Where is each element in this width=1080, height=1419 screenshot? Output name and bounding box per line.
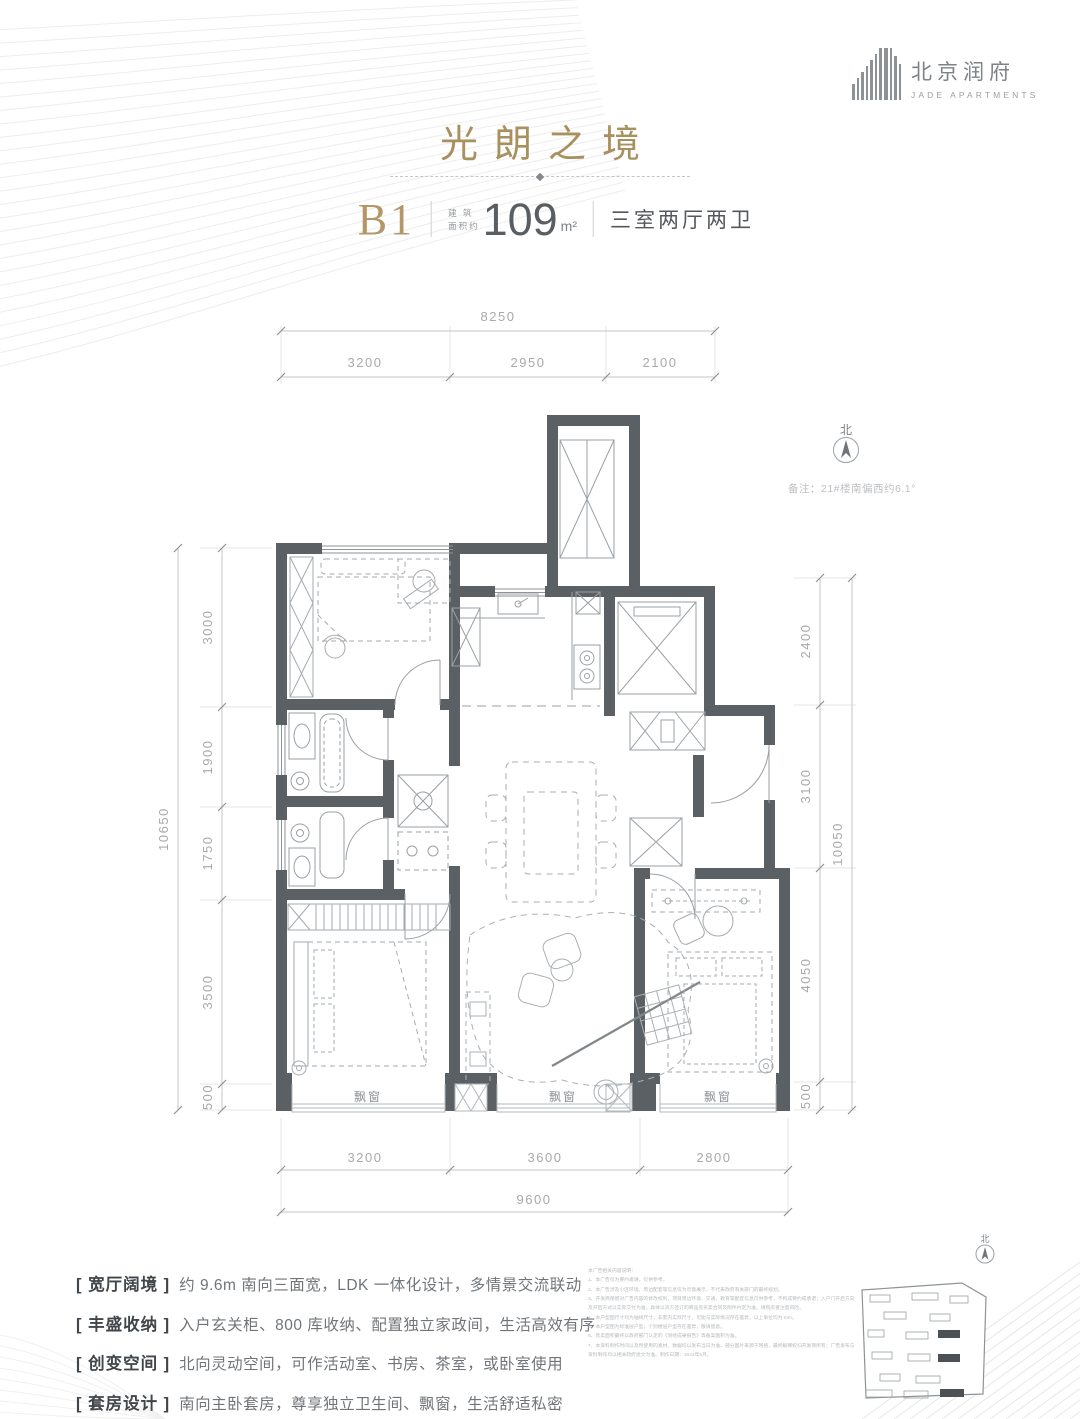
sink-icon xyxy=(294,724,310,748)
north-arrow-icon xyxy=(841,440,851,458)
dimensions: 8250 3200 2950 2100 3200 3600 2800 9600 … xyxy=(156,309,856,1216)
disclaimer-item: 5、本户型图为标准层户型，个别楼层户型存在差异，敬请留意。 xyxy=(588,1323,856,1332)
disclaimer-title: 本广告相关内容说明： xyxy=(588,1267,856,1276)
north-arrow-icon xyxy=(982,1247,989,1260)
dim-left-4: 3500 xyxy=(200,975,215,1010)
disclaimer-item: 2、本广告涉及小区环境、周边配套等信息仅为示意展示，不代表政府有关部门的最终规划… xyxy=(588,1286,856,1295)
feature-list: [ 宽厅阔境 ] 约 9.6m 南向三面宽，LDK 一体化设计，多情景交流联动 … xyxy=(76,1271,588,1419)
disclaimer-item: 6、售卖面积最终以政府部门认定的《测绘成果报告》等备案面积为准。 xyxy=(588,1332,856,1341)
dim-left-3: 1750 xyxy=(200,836,215,871)
shaft-duct-icon xyxy=(630,712,705,750)
north-arrow-site: 北 xyxy=(976,1234,994,1263)
walls xyxy=(276,415,790,1111)
desk xyxy=(398,559,450,603)
feature-text: 南向主卧套房，尊享独立卫生间、飘窗，生活舒适私密 xyxy=(179,1392,563,1414)
dim-left-2: 1900 xyxy=(200,740,215,775)
brand-logo: 北京润府 JADE APARTMENTS xyxy=(852,48,1052,100)
wardrobe xyxy=(288,904,450,930)
dim-right-4: 500 xyxy=(798,1083,813,1109)
site-plan: 北 xyxy=(862,1234,994,1398)
dim-top-3: 2100 xyxy=(643,355,678,370)
north-arrow-plan: 北 xyxy=(834,423,859,463)
dining-table xyxy=(506,762,596,902)
logo-text-en: JADE APARTMENTS xyxy=(911,90,1038,100)
bay-label-1: 飘窗 xyxy=(354,1090,382,1104)
dim-bottom-3: 2800 xyxy=(697,1150,732,1165)
chair xyxy=(596,795,616,821)
bay-label-2: 飘窗 xyxy=(549,1090,577,1104)
sink-icon xyxy=(294,856,310,878)
toilet-icon xyxy=(291,772,309,790)
bed xyxy=(308,942,426,1066)
pillow xyxy=(321,559,405,574)
shower-icon xyxy=(320,812,344,878)
bedroom-3 xyxy=(652,890,773,1073)
headboard xyxy=(294,942,308,1066)
dim-bottom-1: 3200 xyxy=(348,1150,383,1165)
storage-cabinet xyxy=(398,832,448,870)
armchair xyxy=(517,971,556,1008)
feature-label: [ 丰盛收纳 ] xyxy=(76,1311,170,1335)
disclaimer-item: 3、开发商保留对广告内容的修改权利，项目周边环境、交通、教育等配套信息仅供参考，… xyxy=(588,1295,856,1314)
dim-bottom-2: 3600 xyxy=(528,1150,563,1165)
dim-right-3: 4050 xyxy=(798,958,813,993)
floor-plan: 飘窗 飘窗 飘窗 xyxy=(276,415,790,1112)
title-divider xyxy=(390,176,690,177)
bathroom-2 xyxy=(289,812,344,886)
poster-page: 飘窗 飘窗 飘窗 xyxy=(0,0,1080,1419)
decorative-lines-top-left xyxy=(0,0,625,368)
divider xyxy=(431,201,432,237)
elevator-icon xyxy=(618,602,696,694)
disclaimer-item: 1、本广告仅为要约邀请，仅供参考。 xyxy=(588,1276,856,1285)
stove-icon xyxy=(574,645,600,689)
lamp-icon xyxy=(292,1061,306,1075)
bay-label-3: 飘窗 xyxy=(704,1090,732,1104)
disclaimer-item: 7、本资料制作时间以及所使用的素材、数据均以发布当日为准，部分图片来源于网络，最… xyxy=(588,1342,856,1361)
dim-top-total: 8250 xyxy=(481,309,516,324)
logo-text-cn: 北京润府 xyxy=(911,56,1038,86)
area-unit: m² xyxy=(561,218,577,234)
lamp-icon xyxy=(759,1059,773,1073)
feature-label: [ 宽厅阔境 ] xyxy=(76,1271,170,1295)
area-label: 建 筑 面积约 xyxy=(448,207,480,233)
dim-right-2: 3100 xyxy=(798,769,813,804)
dim-left-total: 10650 xyxy=(156,807,171,851)
dining-area xyxy=(486,762,616,902)
dim-left-5: 500 xyxy=(200,1084,215,1110)
divider xyxy=(593,201,594,237)
area-label-line1: 建 筑 xyxy=(448,207,480,220)
unit-name: B1 xyxy=(358,194,415,245)
pillow xyxy=(722,958,762,976)
chair xyxy=(672,912,707,947)
desk-chair xyxy=(413,570,435,592)
vanity xyxy=(289,848,315,886)
round-table xyxy=(703,906,733,936)
kitchen xyxy=(452,592,600,700)
pillow xyxy=(314,1004,334,1052)
vanity xyxy=(289,713,315,759)
rug xyxy=(467,913,691,1086)
feature-label: [ 创变空间 ] xyxy=(76,1350,170,1374)
laundry-area xyxy=(398,775,448,870)
chair xyxy=(486,842,506,868)
feature-text: 北向灵动空间，可作活动室、书房、茶室，或卧室使用 xyxy=(179,1352,563,1374)
dim-top-2: 2950 xyxy=(511,355,546,370)
area-label-line2: 面积约 xyxy=(448,220,480,233)
pillow xyxy=(676,958,716,976)
feature-text: 约 9.6m 南向三面宽，LDK 一体化设计，多情景交流联动 xyxy=(179,1273,582,1295)
feature-row: [ 套房设计 ] 南向主卧套房，尊享独立卫生间、飘窗，生活舒适私密 xyxy=(76,1390,588,1414)
living-area xyxy=(466,913,700,1104)
page-title: 光朗之境 xyxy=(0,113,1080,168)
dim-bottom-total: 9600 xyxy=(517,1192,552,1207)
dim-top-1: 3200 xyxy=(348,355,383,370)
dim-left-1: 3000 xyxy=(200,610,215,645)
entry-closet-icon xyxy=(630,818,682,866)
plan-note: 备注：21#楼南偏西约6.1° xyxy=(788,482,916,495)
area-value: 109 xyxy=(483,197,558,242)
feature-row: [ 宽厅阔境 ] 约 9.6m 南向三面宽，LDK 一体化设计，多情景交流联动 xyxy=(76,1271,588,1295)
bedroom-master xyxy=(288,904,450,1075)
toilet-icon xyxy=(291,824,309,842)
armchair xyxy=(541,931,583,971)
chair xyxy=(596,842,616,868)
dim-right-1: 2400 xyxy=(798,624,813,659)
dim-right-total: 10050 xyxy=(830,822,845,866)
feature-text: 入户玄关柜、800 库收纳、配置独立家政间，生活高效有序 xyxy=(179,1313,595,1335)
disclaimer-block: 本广告相关内容说明： 1、本广告仅为要约邀请，仅供参考。 2、本广告涉及小区环境… xyxy=(588,1267,856,1360)
bed xyxy=(318,577,430,641)
feature-row: [ 丰盛收纳 ] 入户玄关柜、800 库收纳、配置独立家政间，生活高效有序 xyxy=(76,1311,588,1335)
unit-spec-row: B1 建 筑 面积约 109 m² 三室两厅两卫 xyxy=(358,191,754,247)
logo-icon xyxy=(852,48,901,100)
feature-row: [ 创变空间 ] 北向灵动空间，可作活动室、书房、茶室，或卧室使用 xyxy=(76,1350,588,1374)
chair xyxy=(486,795,506,821)
bathtub-icon xyxy=(320,714,344,792)
unit-rooms: 三室两厅两卫 xyxy=(610,204,754,234)
north-label: 北 xyxy=(980,1234,989,1244)
bay-window-labels: 飘窗 飘窗 飘窗 xyxy=(354,1090,732,1104)
disclaimer-item: 4、本户型图尺寸均为轴线尺寸，非套内实际尺寸，可能与实际情况存在差异，以上单位均… xyxy=(588,1314,856,1323)
pillow xyxy=(314,950,334,998)
stair-icon xyxy=(560,440,614,558)
bathroom-1 xyxy=(289,713,344,792)
side-table xyxy=(551,959,573,981)
feature-label: [ 套房设计 ] xyxy=(76,1390,170,1414)
north-label: 北 xyxy=(840,423,852,437)
bedroom-north xyxy=(290,557,450,697)
